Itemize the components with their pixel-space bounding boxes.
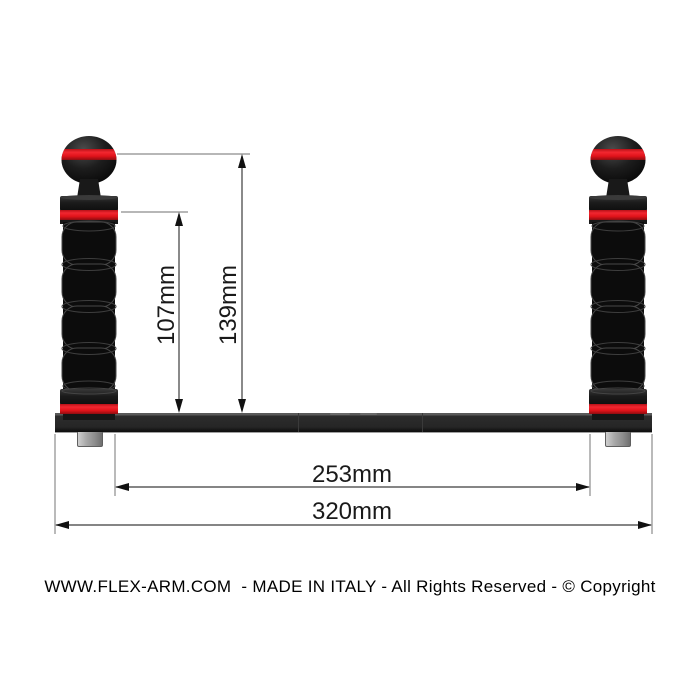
tray-bar <box>55 413 652 432</box>
mounting-screw-right <box>605 432 631 447</box>
flex-arm-left <box>57 136 121 420</box>
product-diagram-canvas: 139mm 107mm 253mm 320mm W <box>0 0 700 700</box>
dimension-320mm: 320mm <box>55 434 652 534</box>
tray-bar-seam <box>422 413 423 432</box>
dimension-139mm: 139mm <box>117 154 250 413</box>
tray-bar-seam <box>298 413 299 432</box>
dimension-label-253mm: 253mm <box>312 461 392 488</box>
mounting-screw-left <box>77 432 103 447</box>
dimension-107mm: 107mm <box>121 212 188 413</box>
tray-bar-slot <box>330 413 350 415</box>
flex-arm-right <box>586 136 650 420</box>
dimension-253mm: 253mm <box>115 434 590 496</box>
dimension-label-139mm: 139mm <box>215 265 242 345</box>
dimension-label-320mm: 320mm <box>312 498 392 525</box>
tray-bar-slot <box>360 413 377 415</box>
dimension-label-107mm: 107mm <box>153 265 180 345</box>
footer-copyright-text: WWW.FLEX-ARM.COM - MADE IN ITALY - All R… <box>0 577 700 597</box>
